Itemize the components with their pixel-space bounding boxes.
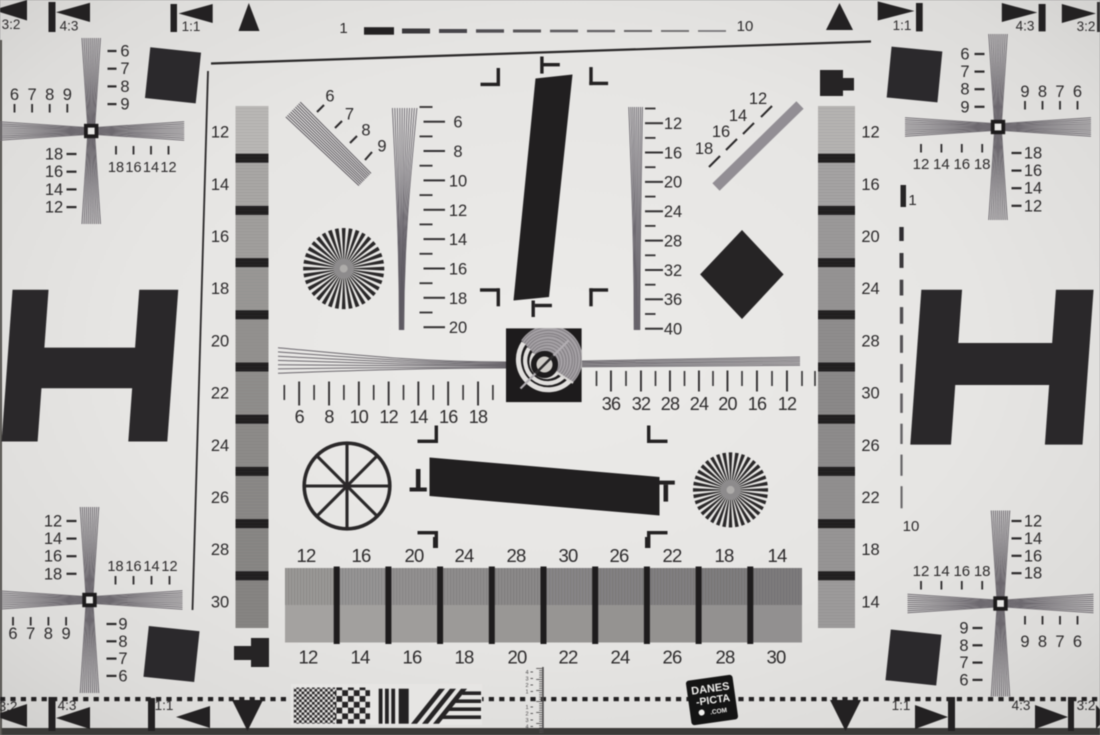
svg-text:1: 1	[908, 192, 916, 209]
svg-text:6: 6	[8, 625, 17, 643]
svg-text:40: 40	[664, 321, 682, 339]
svg-text:26: 26	[610, 545, 629, 566]
svg-text:18: 18	[469, 407, 488, 427]
svg-text:14: 14	[933, 563, 950, 580]
svg-text:22: 22	[211, 385, 229, 403]
svg-text:9: 9	[960, 98, 969, 116]
svg-text:8: 8	[120, 78, 129, 96]
svg-text:12: 12	[861, 124, 879, 142]
svg-text:1:1: 1:1	[182, 19, 201, 34]
svg-text:28: 28	[716, 647, 735, 668]
svg-text:8: 8	[1038, 633, 1047, 651]
svg-text:8: 8	[960, 81, 969, 99]
svg-text:16: 16	[449, 261, 467, 279]
svg-text:7: 7	[345, 106, 354, 124]
svg-text:7: 7	[120, 60, 129, 78]
svg-text:14: 14	[351, 647, 370, 668]
svg-text:4:3: 4:3	[60, 19, 79, 34]
svg-text:6: 6	[325, 88, 334, 106]
svg-text:20: 20	[211, 332, 229, 350]
svg-text:16: 16	[211, 228, 229, 246]
svg-text:2: 2	[525, 712, 528, 718]
svg-text:14: 14	[861, 593, 879, 611]
svg-text:18: 18	[974, 156, 991, 173]
svg-text:28: 28	[664, 232, 682, 250]
svg-text:9: 9	[377, 138, 386, 156]
svg-text:12: 12	[161, 559, 177, 575]
svg-text:16: 16	[953, 563, 970, 580]
svg-text:10: 10	[737, 18, 754, 35]
svg-text:4: 4	[525, 725, 528, 731]
svg-text:10: 10	[903, 518, 920, 535]
svg-text:26: 26	[861, 437, 879, 455]
svg-text:3: 3	[525, 718, 528, 724]
svg-text:14: 14	[449, 231, 467, 249]
svg-text:14: 14	[143, 160, 159, 176]
svg-text:30: 30	[767, 647, 786, 668]
svg-text:16: 16	[1024, 162, 1042, 180]
svg-text:18: 18	[455, 647, 474, 668]
svg-text:6: 6	[1073, 633, 1082, 651]
svg-text:7: 7	[28, 86, 37, 104]
svg-text:8: 8	[44, 625, 53, 643]
svg-text:8: 8	[959, 637, 968, 655]
svg-text:7: 7	[118, 650, 127, 668]
svg-text:22: 22	[663, 545, 682, 566]
svg-text:24: 24	[211, 437, 229, 455]
svg-text:4:3: 4:3	[58, 698, 77, 713]
svg-text:1:1: 1:1	[155, 698, 174, 713]
svg-text:18: 18	[45, 146, 63, 164]
svg-text:16: 16	[125, 559, 141, 575]
svg-text:18: 18	[715, 545, 734, 566]
svg-text:24: 24	[611, 647, 630, 668]
svg-text:36: 36	[602, 394, 621, 414]
svg-text:8: 8	[453, 143, 462, 161]
svg-text:7: 7	[26, 625, 35, 643]
svg-text:30: 30	[559, 545, 578, 566]
svg-text:6: 6	[295, 407, 305, 427]
svg-text:26: 26	[211, 489, 229, 507]
svg-text:20: 20	[508, 647, 527, 668]
svg-text:16: 16	[45, 163, 63, 181]
svg-text:7: 7	[1055, 633, 1064, 651]
svg-text:12: 12	[778, 394, 797, 414]
svg-text:22: 22	[861, 489, 879, 507]
svg-text:3: 3	[525, 677, 528, 683]
svg-text:18: 18	[108, 160, 124, 176]
svg-text:8: 8	[324, 407, 334, 427]
svg-text:12: 12	[664, 115, 682, 133]
svg-text:18: 18	[1024, 145, 1042, 163]
svg-text:16: 16	[403, 647, 422, 668]
svg-text:4: 4	[525, 670, 528, 676]
svg-text:24: 24	[690, 394, 709, 414]
svg-text:12: 12	[160, 160, 176, 176]
svg-text:3:2: 3:2	[2, 17, 21, 32]
svg-text:12: 12	[379, 407, 398, 427]
svg-text:7: 7	[1055, 83, 1064, 101]
svg-text:1: 1	[339, 20, 347, 37]
svg-text:12: 12	[297, 545, 316, 566]
svg-text:20: 20	[861, 228, 879, 246]
svg-text:16: 16	[439, 407, 458, 427]
svg-text:12: 12	[211, 124, 229, 142]
svg-text:9: 9	[62, 625, 71, 643]
svg-text:6: 6	[118, 667, 127, 685]
svg-text:6: 6	[959, 671, 968, 689]
svg-text:16: 16	[712, 123, 730, 141]
svg-text:22: 22	[559, 647, 578, 668]
svg-text:12: 12	[299, 647, 318, 668]
svg-text:9: 9	[118, 616, 127, 634]
svg-text:9: 9	[1020, 83, 1029, 101]
svg-text:18: 18	[974, 563, 991, 580]
svg-text:8: 8	[118, 633, 127, 651]
svg-text:9: 9	[120, 96, 129, 114]
svg-text:7: 7	[960, 63, 969, 81]
svg-text:3:2: 3:2	[1077, 19, 1096, 34]
svg-text:7: 7	[959, 654, 968, 672]
svg-text:18: 18	[44, 565, 62, 583]
svg-text:14: 14	[1024, 530, 1042, 548]
svg-text:24: 24	[455, 545, 474, 566]
svg-text:14: 14	[768, 545, 787, 566]
svg-text:14: 14	[44, 530, 62, 548]
svg-text:9: 9	[63, 86, 72, 104]
svg-text:12: 12	[1024, 197, 1042, 215]
svg-text:6: 6	[453, 114, 462, 132]
svg-text:28: 28	[507, 545, 526, 566]
svg-text:26: 26	[663, 647, 682, 668]
svg-text:16: 16	[1024, 547, 1042, 565]
svg-text:12: 12	[913, 563, 930, 580]
svg-text:10: 10	[350, 407, 369, 427]
svg-text:8: 8	[1038, 83, 1047, 101]
svg-text:4:3: 4:3	[1012, 698, 1031, 713]
svg-text:12: 12	[749, 90, 767, 108]
svg-text:24: 24	[861, 280, 879, 298]
svg-text:28: 28	[661, 394, 680, 414]
svg-text:12: 12	[44, 513, 62, 531]
svg-text:16: 16	[44, 548, 62, 566]
svg-text:18: 18	[1024, 565, 1042, 583]
svg-text:30: 30	[211, 593, 229, 611]
svg-text:30: 30	[861, 385, 879, 403]
svg-text:20: 20	[664, 174, 682, 192]
svg-text:16: 16	[861, 176, 879, 194]
svg-text:6: 6	[120, 43, 129, 61]
svg-text:8: 8	[361, 122, 370, 140]
svg-text:14: 14	[143, 559, 159, 575]
svg-text:16: 16	[352, 545, 371, 566]
svg-text:24: 24	[664, 203, 682, 221]
svg-text:20: 20	[449, 319, 467, 337]
svg-text:32: 32	[664, 262, 682, 280]
svg-text:14: 14	[45, 181, 63, 199]
svg-text:32: 32	[632, 394, 651, 414]
svg-text:18: 18	[695, 140, 713, 158]
svg-text:18: 18	[211, 280, 229, 298]
svg-text:16: 16	[748, 394, 767, 414]
svg-text:4:3: 4:3	[1016, 19, 1035, 34]
svg-text:14: 14	[729, 107, 747, 125]
svg-text:16: 16	[953, 156, 970, 173]
svg-text:1: 1	[525, 705, 528, 711]
svg-text:1: 1	[525, 690, 528, 696]
svg-text:12: 12	[1024, 513, 1042, 531]
svg-text:12: 12	[449, 202, 467, 220]
svg-text:8: 8	[45, 86, 54, 104]
svg-text:10: 10	[449, 172, 467, 190]
svg-text:12: 12	[913, 156, 930, 173]
svg-text:6: 6	[1073, 83, 1082, 101]
svg-text:20: 20	[718, 394, 737, 414]
svg-text:3:2: 3:2	[1077, 698, 1096, 713]
svg-text:14: 14	[1024, 180, 1042, 198]
svg-text:6: 6	[10, 86, 19, 104]
svg-text:12: 12	[45, 199, 63, 217]
svg-text:2: 2	[525, 683, 528, 689]
svg-text:20: 20	[405, 545, 424, 566]
svg-text:1:1: 1:1	[893, 18, 912, 33]
svg-text:6: 6	[960, 46, 969, 64]
svg-text:14: 14	[409, 407, 428, 427]
svg-text:9: 9	[959, 620, 968, 638]
svg-text:16: 16	[664, 144, 682, 162]
svg-text:16: 16	[125, 160, 141, 176]
svg-text:9: 9	[1020, 633, 1029, 651]
svg-text:18: 18	[861, 541, 879, 559]
svg-text:14: 14	[211, 176, 229, 194]
svg-text:18: 18	[449, 290, 467, 308]
svg-text:28: 28	[861, 332, 879, 350]
svg-text:36: 36	[664, 291, 682, 309]
svg-text:18: 18	[107, 559, 123, 575]
svg-text:14: 14	[933, 156, 950, 173]
svg-text:1:1: 1:1	[892, 698, 911, 713]
svg-text:28: 28	[211, 541, 229, 559]
